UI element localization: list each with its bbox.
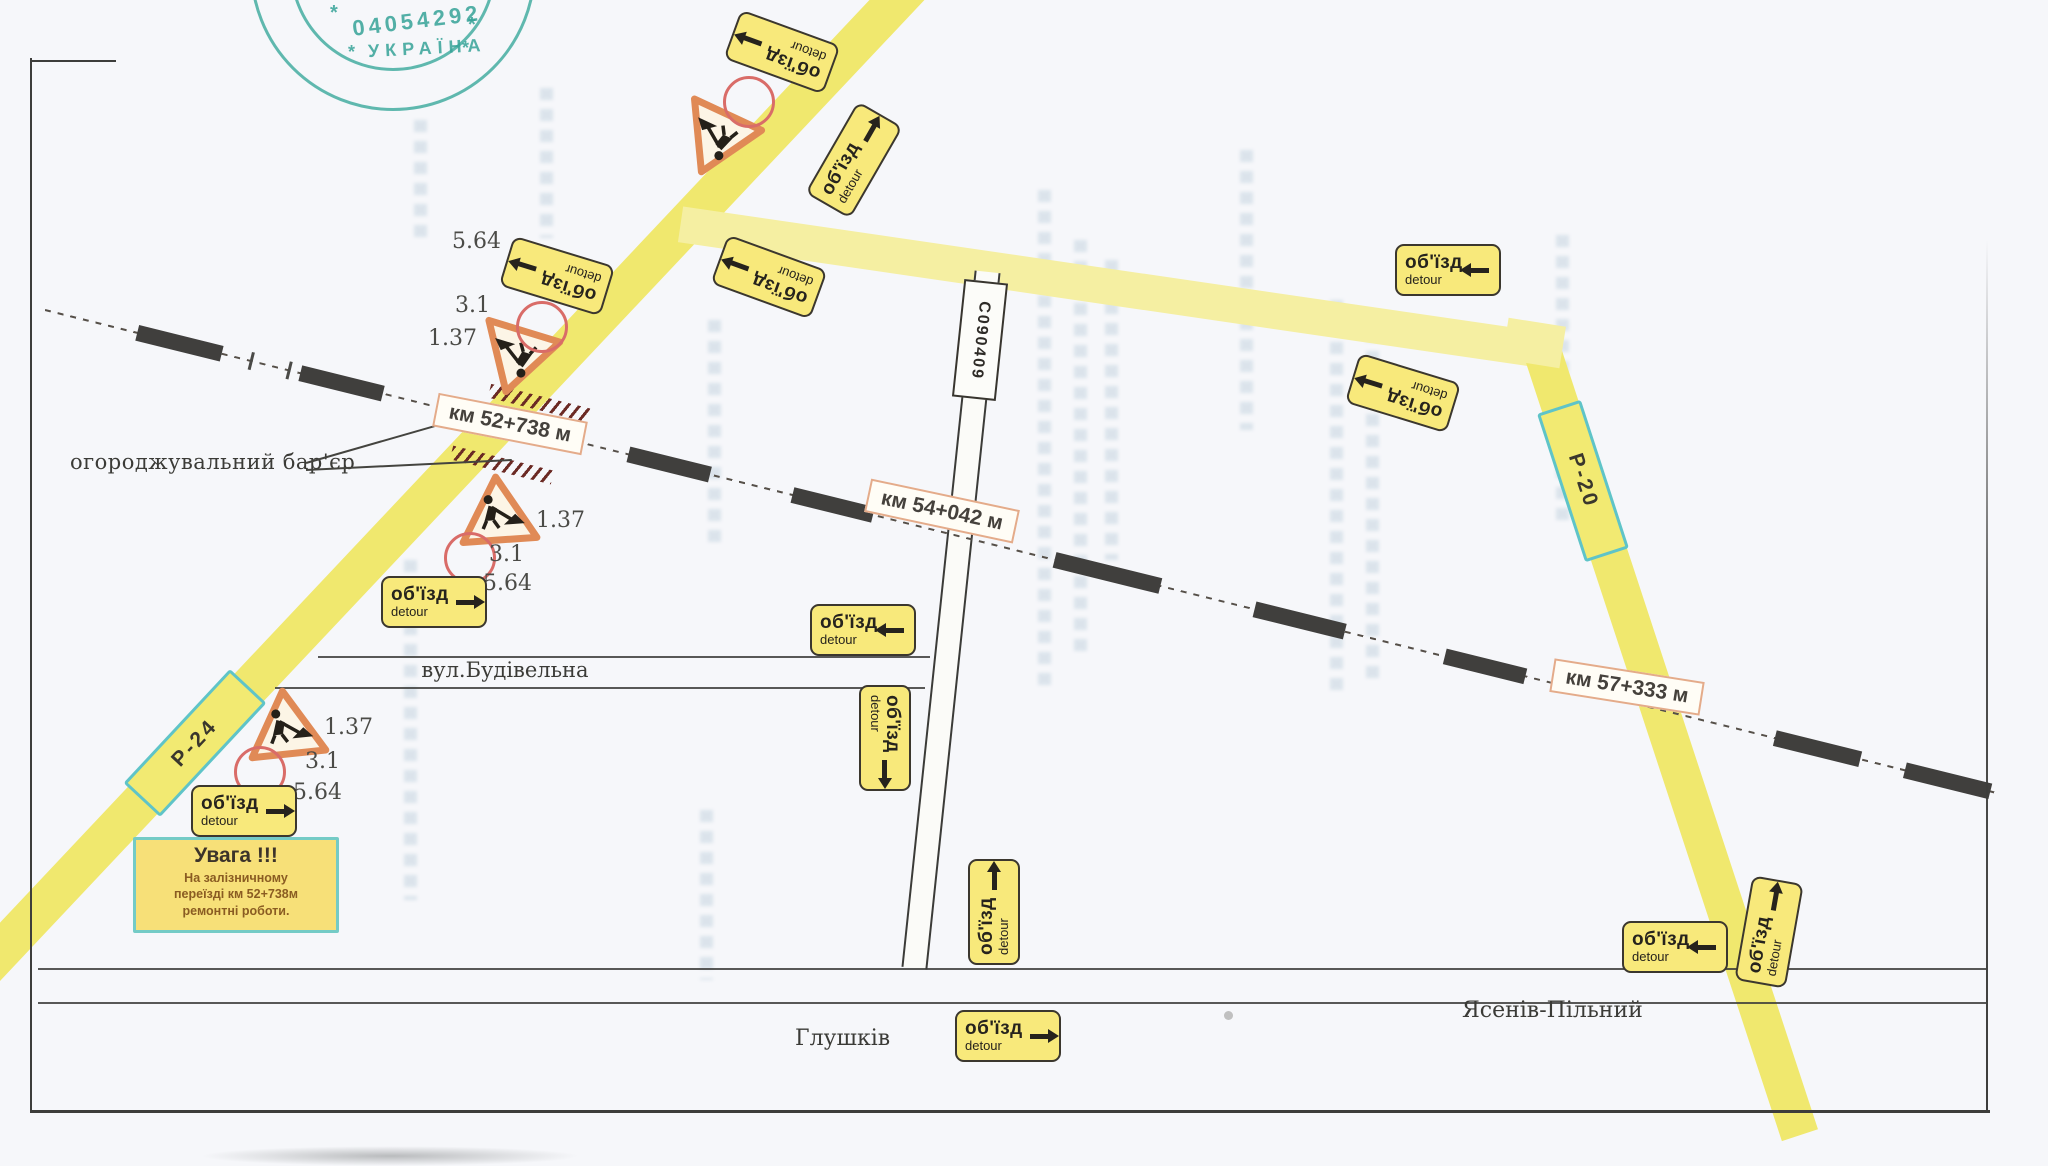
detour-sign: об'їздdetour bbox=[810, 604, 916, 656]
detour-sign: об'їздdetour bbox=[499, 236, 616, 317]
detour-sign: об'їздdetour bbox=[1622, 921, 1728, 973]
detour-label-uk: об'їзд bbox=[201, 794, 259, 814]
railway-segment bbox=[1773, 730, 1862, 767]
sign-code: 1.37 bbox=[428, 326, 477, 351]
settlement-label-glushkiv: Глушків bbox=[795, 1026, 890, 1051]
detour-label-uk: об'їзд bbox=[965, 1019, 1023, 1039]
sign-code: 3.1 bbox=[489, 542, 524, 567]
local-road-number: С090409 bbox=[967, 300, 993, 380]
detour-label-en: detour bbox=[1405, 273, 1463, 287]
detour-label-en: detour bbox=[391, 605, 449, 619]
detour-label-en: detour bbox=[965, 1039, 1023, 1053]
arrow-left-icon bbox=[885, 628, 904, 633]
notice-line: На залізничному bbox=[136, 870, 336, 886]
arrow-right-icon bbox=[456, 600, 475, 605]
railway-segment bbox=[298, 365, 384, 401]
stamp-star: * bbox=[462, 38, 469, 59]
scan-speck bbox=[1224, 1011, 1233, 1020]
km-marker-54-042: км 54+042 м bbox=[864, 479, 1020, 544]
detour-label-uk: об'їзд bbox=[1405, 253, 1463, 273]
arrow-right-icon bbox=[517, 262, 537, 272]
arrow-right-icon bbox=[992, 871, 997, 890]
bleed-text-column bbox=[708, 320, 721, 550]
local-road-number-box: С090409 bbox=[952, 279, 1008, 401]
drawing-frame-right bbox=[1986, 240, 1988, 1112]
detour-label-uk: об'їзд bbox=[820, 613, 878, 633]
detour-label-en: detour bbox=[1632, 950, 1690, 964]
detour-label-en: detour bbox=[201, 814, 259, 828]
arrow-right-icon bbox=[743, 36, 763, 47]
detour-sign: об'їздdetour bbox=[805, 101, 903, 219]
arrow-left-icon bbox=[1470, 268, 1489, 273]
detour-label-uk: об'їзд bbox=[1632, 930, 1690, 950]
railway-segment bbox=[626, 447, 711, 483]
arrow-right-icon bbox=[730, 261, 750, 272]
arrow-right-icon bbox=[1363, 379, 1383, 389]
route-box-p20: Р-20 bbox=[1537, 400, 1629, 563]
detour-sign: об'їздdetour bbox=[1734, 875, 1804, 988]
scan-shadow bbox=[200, 1146, 580, 1166]
detour-label-uk: об'їзд bbox=[977, 897, 997, 955]
detour-label-uk: об'їзд bbox=[391, 585, 449, 605]
detour-sign: об'їздdetour bbox=[191, 785, 297, 837]
stamp-star: * bbox=[468, 14, 476, 37]
detour-sign: об'їздdetour bbox=[859, 685, 911, 791]
notice-line: ремонтні роботи. bbox=[136, 903, 336, 919]
arrow-left-icon bbox=[1697, 945, 1716, 950]
stamp-star: * bbox=[348, 42, 355, 63]
notice-box: Увага !!! На залізничному переїзді км 52… bbox=[133, 837, 339, 933]
stamp-star: * bbox=[330, 2, 338, 25]
detour-label-en: detour bbox=[997, 897, 1011, 955]
bleed-text-column bbox=[414, 120, 427, 240]
railway-segment bbox=[791, 487, 875, 522]
sign-code: 1.37 bbox=[324, 715, 373, 740]
detour-scheme-scan: огороджувальний бар'єр км 52+738 м км 54… bbox=[0, 0, 2048, 1166]
notice-title: Увага !!! bbox=[136, 844, 336, 868]
bleed-text-column bbox=[1074, 240, 1087, 660]
detour-label-en: detour bbox=[820, 633, 878, 647]
no-entry-sign-icon bbox=[723, 76, 775, 128]
detour-sign: об'їздdetour bbox=[1395, 244, 1501, 296]
no-entry-sign-icon bbox=[516, 301, 568, 353]
bleed-text-column bbox=[700, 810, 713, 980]
detour-sign: об'їздdetour bbox=[1345, 353, 1462, 434]
drawing-frame-top-stub bbox=[30, 60, 116, 62]
road-bend-patch bbox=[1502, 318, 1566, 369]
sign-code: 1.37 bbox=[536, 508, 585, 533]
drawing-frame-left bbox=[30, 58, 32, 1112]
sign-code: 3.1 bbox=[455, 293, 490, 318]
arrow-right-icon bbox=[863, 123, 877, 142]
arrow-right-icon bbox=[883, 760, 888, 779]
sign-code: 3.1 bbox=[305, 749, 340, 774]
street-line bbox=[275, 687, 925, 689]
bleed-text-column bbox=[540, 88, 553, 238]
railway-segment bbox=[1903, 763, 1992, 800]
barrier-label: огороджувальний бар'єр bbox=[70, 450, 355, 474]
street-label: вул.Будівельна bbox=[395, 658, 615, 682]
arrow-right-icon bbox=[266, 809, 285, 814]
sign-code: 5.64 bbox=[452, 229, 501, 254]
notice-line: переїзді км 52+738м bbox=[136, 886, 336, 902]
settlement-label-yaseniv: Ясенів-Пільний bbox=[1462, 998, 1643, 1023]
arrow-right-icon bbox=[1770, 891, 1778, 911]
detour-sign: об'їздdetour bbox=[381, 576, 487, 628]
detour-sign: об'їздdetour bbox=[955, 1010, 1061, 1062]
detour-sign: об'їздdetour bbox=[968, 859, 1020, 965]
railway-segment bbox=[135, 325, 223, 361]
sign-code: 5.64 bbox=[483, 571, 532, 596]
bottom-road-line bbox=[38, 1002, 1986, 1004]
drawing-frame-bottom bbox=[30, 1110, 1990, 1113]
arrow-right-icon bbox=[1030, 1034, 1049, 1039]
detour-label-en: detour bbox=[868, 695, 882, 753]
sign-code: 5.64 bbox=[293, 780, 342, 805]
detour-label-uk: об'їзд bbox=[882, 695, 902, 753]
pointer-line bbox=[306, 421, 449, 463]
railway-segment bbox=[1443, 649, 1527, 684]
